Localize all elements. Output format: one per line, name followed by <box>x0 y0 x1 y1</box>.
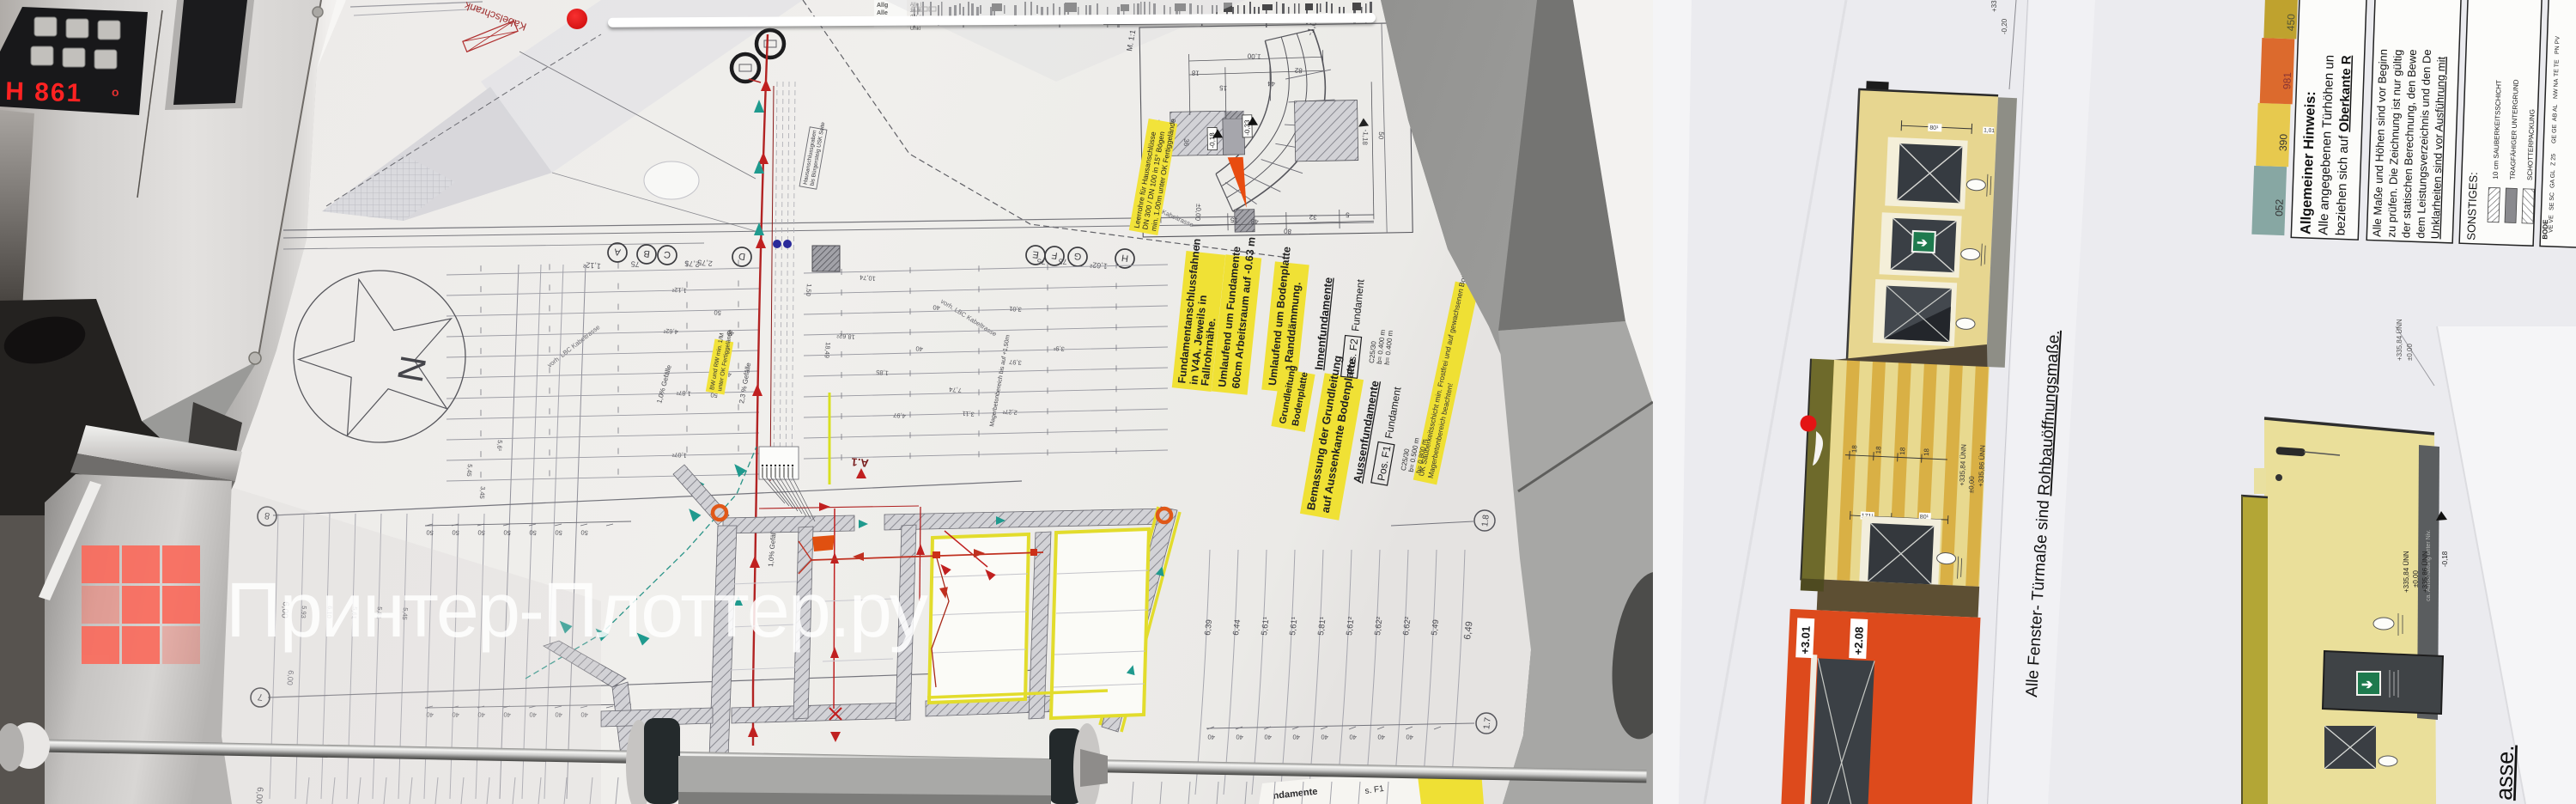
svg-text:50: 50 <box>503 528 511 537</box>
svg-text:50: 50 <box>1377 131 1386 140</box>
svg-text:052: 052 <box>2273 198 2286 216</box>
svg-text:3,01: 3,01 <box>1009 305 1022 314</box>
svg-text:+2.08: +2.08 <box>1851 626 1865 655</box>
svg-text:1,85: 1,85 <box>876 368 889 377</box>
svg-text:18: 18 <box>1923 448 1930 456</box>
svg-text:o: o <box>112 85 119 99</box>
svg-text:40: 40 <box>1349 733 1357 741</box>
svg-text:+335,81 ÜNN: +335,81 ÜNN <box>1990 0 1998 12</box>
svg-text:3,11: 3,11 <box>962 410 975 418</box>
svg-text:C: C <box>663 249 671 260</box>
svg-text:5,45: 5,45 <box>465 464 474 477</box>
svg-text:40: 40 <box>915 344 923 353</box>
svg-text:±0,00: ±0,00 <box>2406 343 2414 361</box>
svg-text:18: 18 <box>1899 447 1906 455</box>
svg-text:50: 50 <box>529 528 537 537</box>
svg-text:1,07²: 1,07² <box>671 450 687 459</box>
svg-text:1.7: 1.7 <box>1482 716 1493 730</box>
svg-text:44: 44 <box>1267 80 1275 88</box>
svg-text:PN PV: PN PV <box>2555 36 2561 55</box>
svg-text:1,87²: 1,87² <box>676 388 691 397</box>
svg-text:Unkl: Unkl <box>910 27 920 32</box>
svg-text:1,62²: 1,62² <box>1090 260 1108 271</box>
svg-text:75: 75 <box>1036 257 1046 266</box>
svg-text:40: 40 <box>933 303 940 312</box>
svg-text:3,97: 3,97 <box>1009 358 1022 367</box>
svg-text:BODE: BODE <box>2541 219 2549 240</box>
svg-text:1,12²: 1,12² <box>671 285 687 294</box>
svg-text:GE GE: GE GE <box>2551 124 2558 143</box>
svg-text:4,97: 4,97 <box>893 411 906 420</box>
svg-text:5,6¹: 5,6¹ <box>495 440 504 452</box>
svg-text:18: 18 <box>1850 444 1858 453</box>
svg-text:36: 36 <box>1182 138 1191 147</box>
svg-text:1.8: 1.8 <box>1480 514 1492 527</box>
svg-text:50: 50 <box>452 528 459 537</box>
svg-text:G: G <box>1073 250 1082 261</box>
svg-text:50: 50 <box>555 528 562 537</box>
svg-text:2,75: 2,75 <box>684 259 700 268</box>
svg-text:D: D <box>738 251 746 262</box>
svg-text:50: 50 <box>580 528 588 537</box>
svg-text:Allg: Allg <box>877 3 888 9</box>
svg-text:GA GL: GA GL <box>2549 170 2556 188</box>
svg-text:50: 50 <box>714 308 721 317</box>
svg-text:75: 75 <box>1058 257 1067 266</box>
svg-text:2,27²: 2,27² <box>1002 407 1018 416</box>
svg-text:➔: ➔ <box>1917 235 1929 251</box>
svg-text:6,39: 6,39 <box>1203 619 1214 636</box>
svg-text:6,44: 6,44 <box>1231 619 1242 636</box>
svg-text:450: 450 <box>2285 14 2298 32</box>
svg-text:AB AL: AB AL <box>2552 104 2559 121</box>
svg-text:4,62²: 4,62² <box>663 326 678 335</box>
svg-text:40: 40 <box>1292 733 1300 741</box>
svg-text:40: 40 <box>1207 733 1215 741</box>
svg-text:1,01: 1,01 <box>1984 128 1995 135</box>
svg-text:40: 40 <box>1377 733 1385 741</box>
svg-text:➔: ➔ <box>2361 678 2373 692</box>
svg-text:asse.: asse. <box>2491 745 2518 801</box>
svg-text:TE TE: TE TE <box>2554 59 2561 76</box>
svg-text:50: 50 <box>477 528 485 537</box>
svg-text:Z 25: Z 25 <box>2550 154 2556 166</box>
svg-text:-0,20: -0,20 <box>2001 18 2008 34</box>
svg-text:50: 50 <box>426 528 434 537</box>
svg-text:NW NA: NW NA <box>2553 78 2560 99</box>
svg-text:80: 80 <box>1283 227 1291 235</box>
svg-text:-1,18: -1,18 <box>1361 129 1370 145</box>
svg-text:7,74: 7,74 <box>949 386 962 394</box>
svg-text:+335,84 ÜNN: +335,84 ÜNN <box>2403 551 2410 593</box>
svg-text:18: 18 <box>1191 69 1200 77</box>
svg-text:32: 32 <box>1309 213 1317 222</box>
svg-text:10,74: 10,74 <box>860 273 876 283</box>
svg-text:5,49: 5,49 <box>1430 619 1441 636</box>
svg-text:±0,00: ±0,00 <box>1967 476 1976 494</box>
svg-text:40: 40 <box>1236 733 1243 741</box>
svg-text:18: 18 <box>1874 446 1882 454</box>
svg-text:±0,00: ±0,00 <box>1194 204 1202 222</box>
svg-text:3,45: 3,45 <box>478 486 487 499</box>
svg-text:-0,18: -0,18 <box>2441 551 2449 567</box>
svg-text:40: 40 <box>1264 733 1272 741</box>
svg-text:A.1: A.1 <box>851 455 869 470</box>
svg-text:SE SC: SE SC <box>2549 192 2556 210</box>
svg-text:981: 981 <box>2281 72 2293 90</box>
svg-text:15: 15 <box>1230 216 1238 224</box>
svg-text:±0,00: ±0,00 <box>2412 569 2420 588</box>
svg-text:40: 40 <box>1321 733 1328 741</box>
svg-text:18,49: 18,49 <box>823 342 832 358</box>
svg-text:1,00: 1,00 <box>1247 52 1261 60</box>
svg-text:390: 390 <box>2277 133 2290 151</box>
svg-text:+335,84 ÜNN: +335,84 ÜNN <box>2396 319 2403 361</box>
svg-text:75: 75 <box>630 259 640 269</box>
svg-text:48: 48 <box>1250 217 1259 226</box>
svg-text:+335,86 ÜNN: +335,86 ÜNN <box>2421 551 2429 593</box>
svg-text:H: H <box>1121 253 1129 264</box>
svg-text:SONSTIGES:: SONSTIGES: <box>2464 172 2480 241</box>
svg-text:18,62²: 18,62² <box>836 332 855 341</box>
svg-text:82: 82 <box>1294 66 1303 75</box>
svg-text:H 861: H 861 <box>5 77 83 107</box>
svg-text:80¹: 80¹ <box>1929 125 1939 131</box>
svg-text:3,9¹: 3,9¹ <box>1053 344 1065 353</box>
svg-text:15: 15 <box>1218 84 1227 93</box>
svg-text:+3.01: +3.01 <box>1798 626 1812 655</box>
svg-text:40: 40 <box>1406 733 1413 741</box>
svg-text:1,50: 1,50 <box>805 283 813 296</box>
